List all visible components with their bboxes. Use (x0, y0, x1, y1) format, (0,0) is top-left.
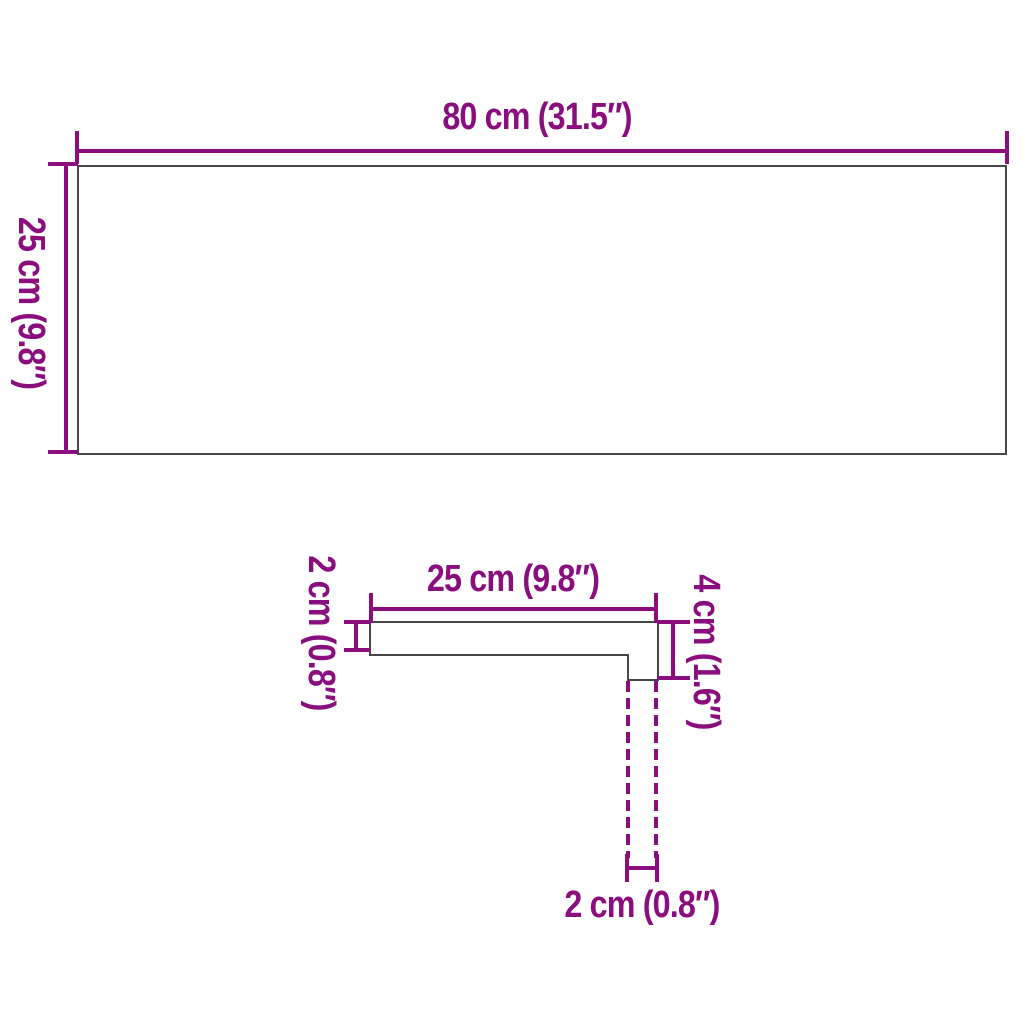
dim-tick-panel-depth-bottom (48, 450, 78, 454)
dim-line-nose-thickness (625, 866, 659, 870)
dim-tick-profile-width-right (654, 593, 658, 623)
dim-tick-profile-thickness-bottom (344, 648, 370, 652)
dim-label-panel-width: 80 cm (31.5″) (442, 98, 631, 138)
dim-tick-panel-width-right (1005, 131, 1009, 164)
dim-tick-profile-thickness-top (344, 620, 370, 624)
dim-tick-panel-width-left (75, 131, 79, 164)
profile-polygon (370, 622, 658, 680)
panel-outline (77, 165, 1007, 455)
dim-line-panel-depth (64, 165, 68, 453)
dim-line-profile-width (371, 607, 657, 611)
dim-label-profile-width: 25 cm (9.8″) (427, 560, 599, 600)
dim-label-nose-thickness: 2 cm (0.8″) (564, 886, 719, 926)
dim-label-profile-thickness: 2 cm (0.8″) (300, 555, 340, 710)
dim-tick-nose-thickness-right (655, 854, 659, 882)
dim-label-panel-depth: 25 cm (9.8″) (10, 217, 50, 389)
dim-label-nose-height: 4 cm (1.6″) (685, 574, 725, 729)
hidden-edge-dashed-lines (620, 681, 670, 861)
dim-tick-nose-thickness-left (625, 854, 629, 882)
dim-tick-panel-depth-top (48, 162, 78, 166)
dim-line-nose-height (671, 622, 675, 680)
dimension-diagram: 80 cm (31.5″) 25 cm (9.8″) 25 cm (9.8″) … (0, 0, 1024, 1024)
dim-tick-profile-width-left (369, 593, 373, 623)
profile-outline (368, 620, 660, 682)
dim-line-panel-width (77, 149, 1007, 153)
